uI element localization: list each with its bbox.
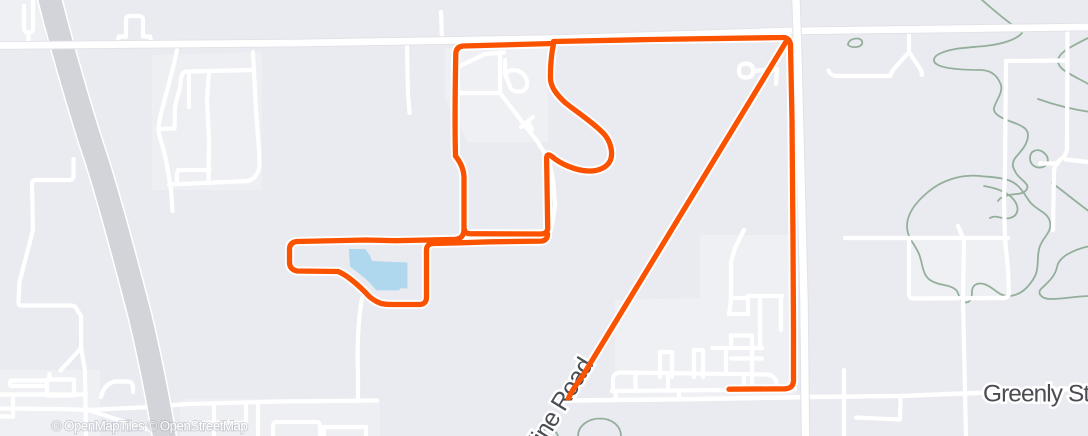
svg-text:Greenly St: Greenly St xyxy=(983,381,1088,408)
svg-text:© OpenMapTiles © OpenStreetMap: © OpenMapTiles © OpenStreetMap xyxy=(52,419,248,434)
